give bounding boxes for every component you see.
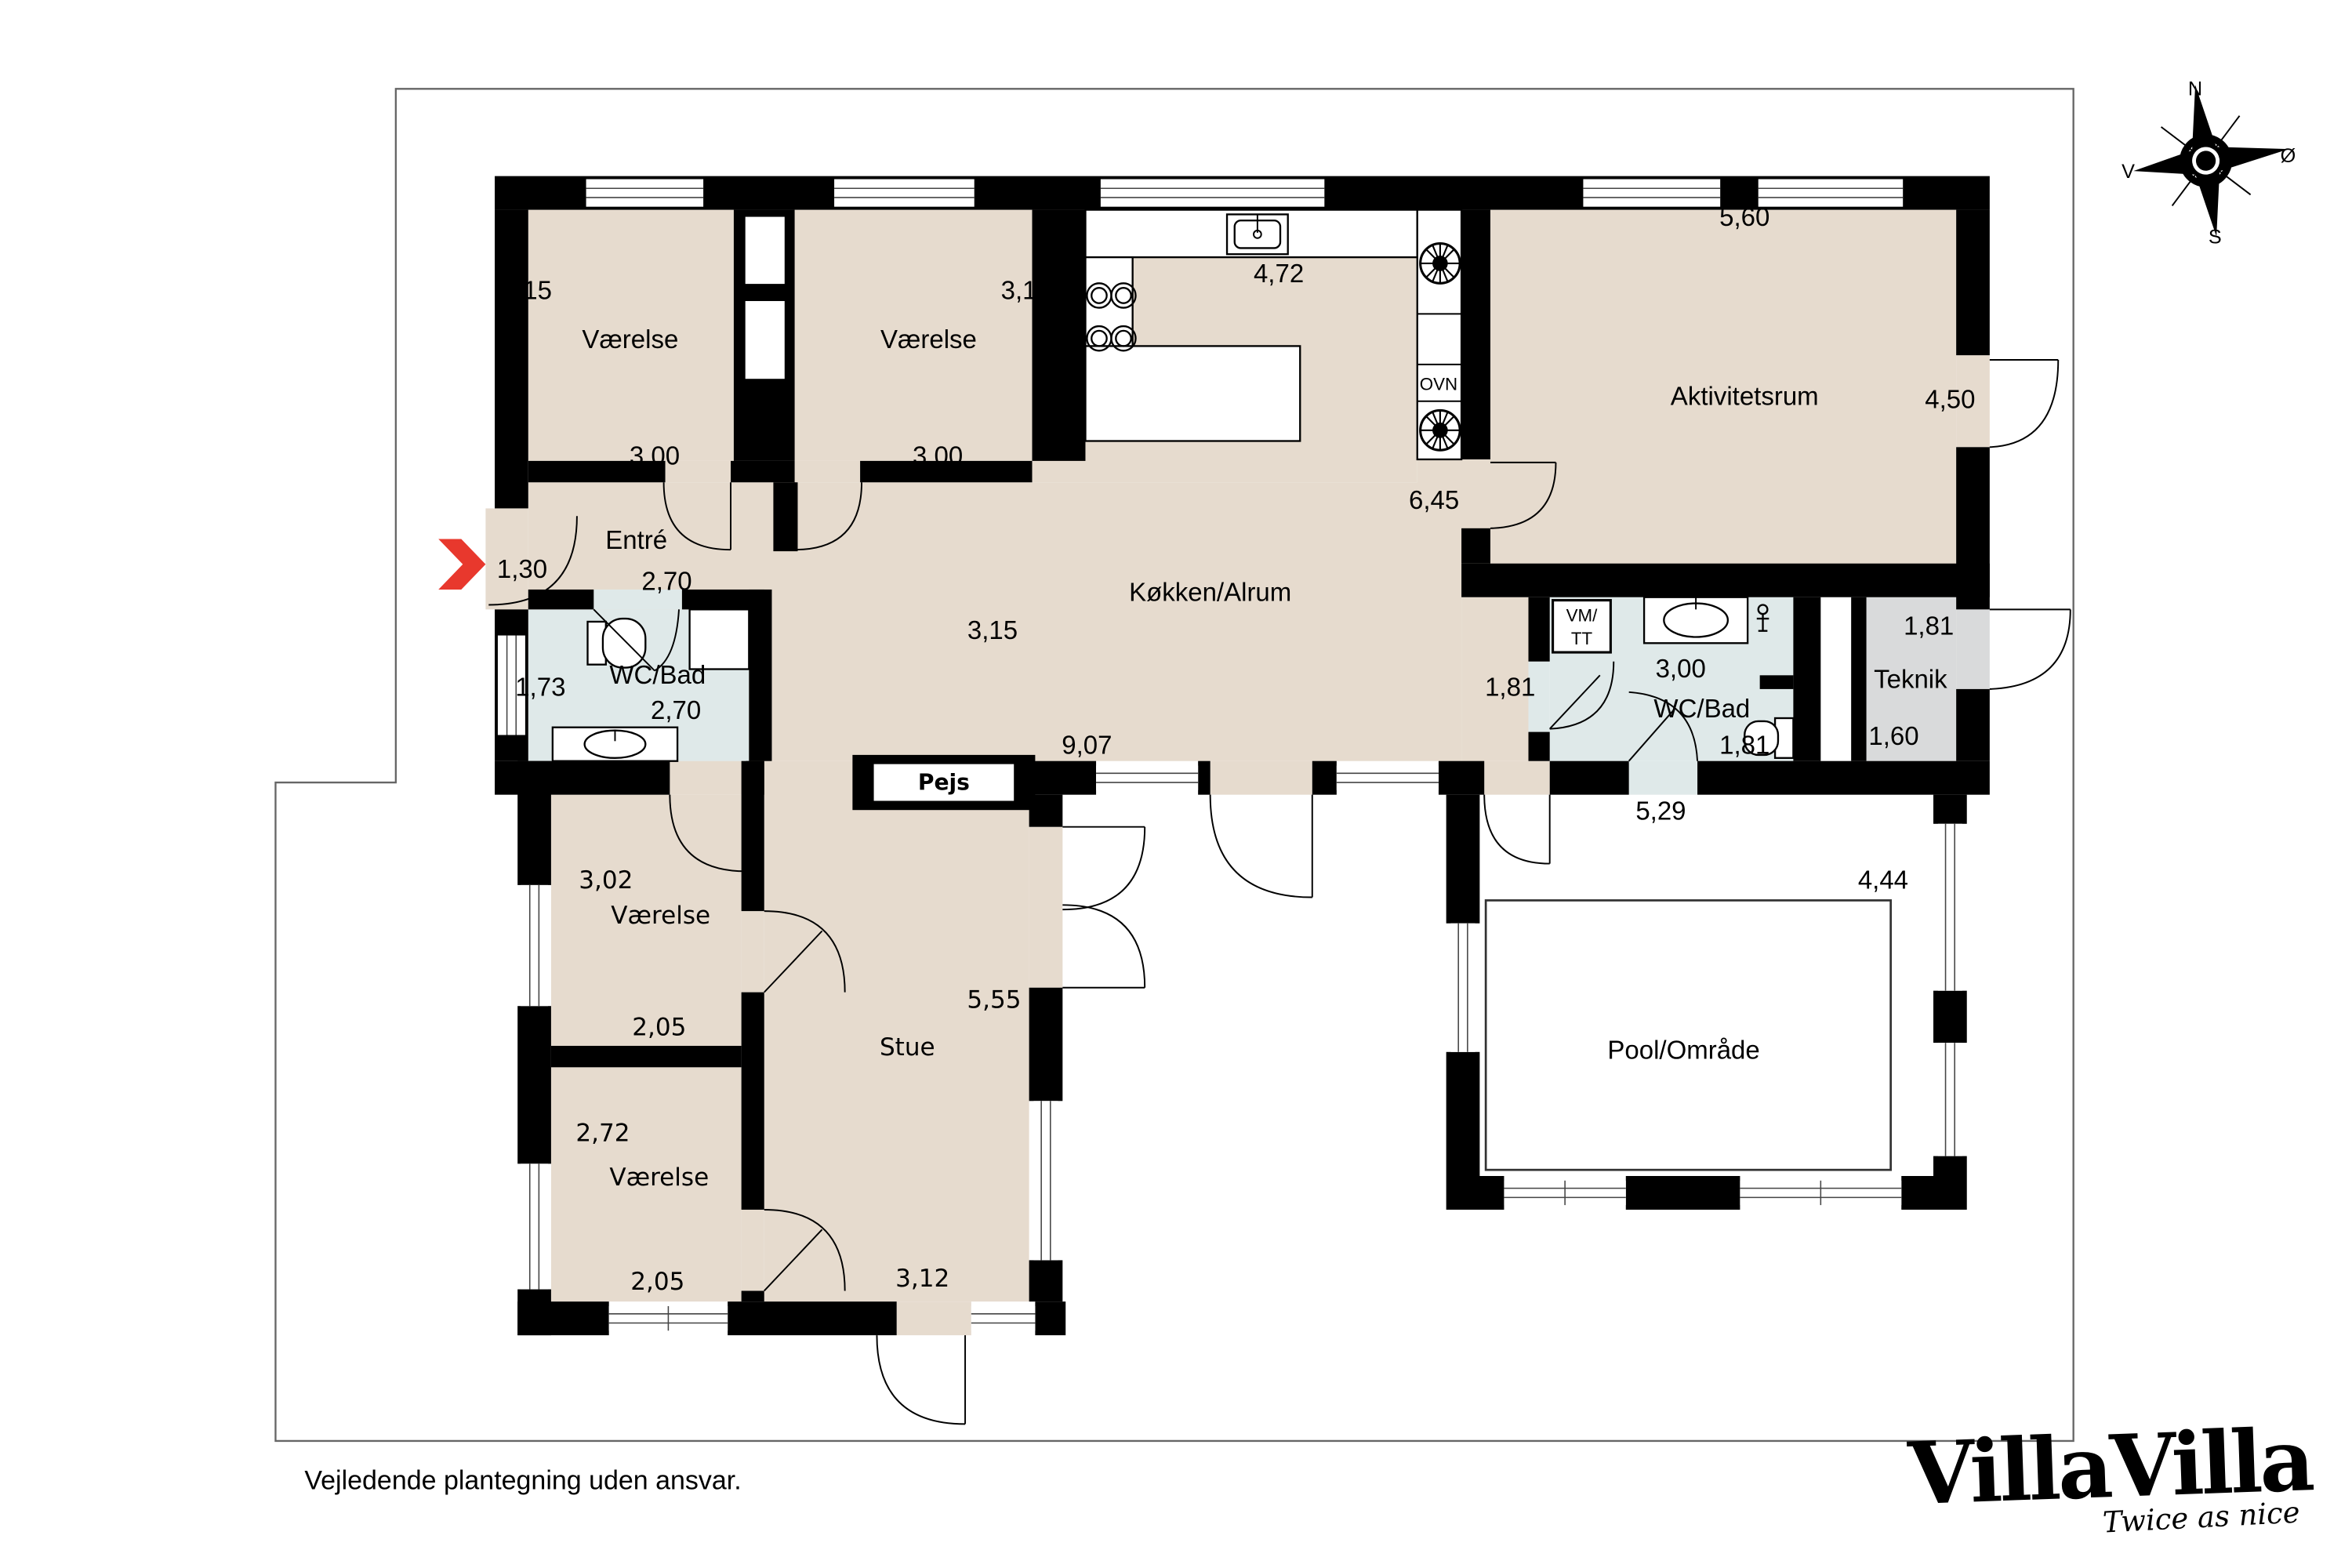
compass-south-label: S (2209, 227, 2222, 249)
window (609, 1306, 728, 1330)
window (971, 1306, 1036, 1330)
oven-label: OVN (1420, 375, 1457, 394)
wall-segment (1626, 1176, 1740, 1210)
measure-label: 1,81 (1904, 612, 1954, 641)
measure-label: 3,00 (913, 441, 963, 470)
measure-label: 2,72 (575, 1119, 630, 1147)
floor-living-room (764, 761, 1029, 1301)
wall-segment (1035, 1301, 1065, 1335)
room-label: Værelse (880, 325, 977, 354)
wall-segment (731, 461, 795, 482)
measure-label: 2,05 (632, 1013, 686, 1041)
kitchen-island (1085, 346, 1300, 441)
window (1759, 180, 1903, 207)
measure-label: 3,15 (967, 616, 1018, 645)
window (1583, 180, 1720, 207)
door (877, 1335, 965, 1424)
wall-segment (1029, 1260, 1063, 1301)
sink-icon (1644, 597, 1748, 644)
wall-segment (1029, 761, 1096, 795)
washer-label: VM/ (1566, 606, 1598, 626)
room-label: Værelse (609, 1163, 709, 1192)
wall-segment (1956, 689, 1990, 761)
measure-label: 3,15 (502, 277, 552, 306)
wall-segment (1446, 795, 1480, 924)
measure-label: 1,81 (1485, 673, 1535, 702)
wall-segment (528, 590, 593, 609)
wall-segment (1439, 761, 1484, 795)
wall-segment (1550, 761, 1629, 795)
entrance-arrow-icon (438, 539, 485, 590)
room-label: Teknik (1874, 666, 1947, 695)
closet-niche (745, 216, 786, 285)
oven-column (1417, 210, 1461, 459)
room-label: Værelse (611, 902, 710, 930)
wall-segment (1956, 210, 1990, 356)
wall-segment (517, 1006, 551, 1163)
window (1096, 766, 1198, 790)
floor-plan-drawing: 3,15 Værelse 3,00 3,15 Værelse 3,00 4,72… (0, 0, 2352, 1568)
measure-label: 9,07 (1062, 731, 1112, 760)
wall-segment (1033, 210, 1086, 461)
wall-segment (1529, 732, 1550, 761)
window (521, 1163, 548, 1289)
door-gap (897, 1301, 971, 1335)
compass-rose: N S Ø V (2122, 73, 2299, 248)
window (1101, 180, 1324, 207)
door-gap (742, 1210, 764, 1291)
wall-segment (749, 590, 771, 761)
room-label: WC/Bad (609, 661, 706, 690)
wall-segment (1029, 988, 1063, 1102)
measure-label: 2,70 (641, 568, 691, 597)
measure-label: 1,73 (515, 673, 565, 702)
window (834, 180, 975, 207)
brand-logo: VillaVilla Twice as nice (1906, 1410, 2315, 1540)
wall-segment (1760, 675, 1794, 689)
door (1062, 905, 1145, 987)
door-gap (742, 911, 764, 993)
compass-north-label: N (2188, 78, 2202, 100)
sink-icon (553, 728, 677, 761)
measure-label: 5,60 (1719, 203, 1769, 232)
wall-segment (551, 1046, 742, 1067)
window (1504, 1181, 1625, 1205)
measure-label: 1,30 (497, 555, 547, 584)
wall-segment (1851, 597, 1866, 761)
window (521, 885, 548, 1006)
door-gap (1029, 827, 1063, 988)
measure-label: 1,81 (1719, 731, 1769, 760)
door-gap (1484, 761, 1549, 795)
compass-west-label: V (2122, 161, 2135, 183)
fan-icon (1421, 244, 1460, 284)
door (1210, 795, 1312, 898)
door-gap (795, 461, 860, 482)
door-gap (1956, 609, 1990, 689)
window (1938, 824, 1962, 991)
washer-label: TT (1571, 629, 1593, 648)
measure-label: 3,02 (579, 866, 633, 895)
window (1938, 1043, 1962, 1156)
wall-segment (1446, 1176, 1504, 1210)
wall-segment (1793, 597, 1820, 761)
door-gap (670, 761, 746, 795)
wall-segment (495, 210, 528, 509)
measure-label: 5,29 (1635, 797, 1686, 826)
wall-segment (1198, 761, 1210, 795)
door (1062, 827, 1145, 909)
wall-segment (1461, 528, 1490, 564)
wall-segment (728, 1301, 897, 1335)
compass-east-label: Ø (2281, 145, 2296, 167)
floor-plan-page: 3,15 Værelse 3,00 3,15 Værelse 3,00 4,72… (0, 0, 2352, 1568)
wall-segment (1529, 597, 1550, 662)
disclaimer-text: Vejledende plantegning uden ansvar. (304, 1466, 741, 1496)
measure-label: 3,00 (1656, 655, 1706, 684)
wall-segment (1461, 210, 1490, 459)
wall-segment (742, 1290, 764, 1301)
closet-niche (745, 300, 786, 380)
fireplace-label: Pejs (918, 769, 970, 795)
window (1740, 1181, 1901, 1205)
door (1990, 609, 2071, 689)
measure-label: 2,05 (630, 1268, 684, 1296)
room-label: WC/Bad (1653, 695, 1750, 724)
room-label: Værelse (582, 325, 678, 354)
wall-segment (742, 761, 764, 911)
wall-segment (1697, 761, 1990, 795)
window (1337, 766, 1439, 790)
wall-segment (742, 993, 764, 1210)
measure-label: 4,50 (1925, 385, 1975, 414)
measure-label: 6,45 (1409, 486, 1459, 515)
measure-label: 2,70 (651, 696, 701, 725)
window (1033, 1101, 1058, 1260)
wall-segment (1461, 564, 1990, 597)
measure-label: 5,55 (967, 985, 1021, 1014)
measure-label: 4,72 (1254, 260, 1304, 289)
measure-label: 3,00 (630, 441, 680, 470)
room-label: Stue (880, 1033, 935, 1062)
floor-passage (1820, 597, 1851, 761)
room-label: Entré (605, 526, 667, 555)
wall-segment (1933, 1156, 1967, 1176)
window (586, 180, 704, 207)
room-label: Køkken/Alrum (1129, 578, 1291, 607)
door-gap (1210, 761, 1312, 795)
measure-label: 3,15 (1001, 277, 1051, 306)
wall-segment (517, 761, 551, 885)
measure-label: 3,12 (895, 1265, 949, 1293)
measure-label: 1,60 (1868, 722, 1918, 751)
wall-segment (1901, 1176, 1966, 1210)
wall-segment (1933, 991, 1967, 1043)
fan-icon (1421, 410, 1460, 450)
room-label: Aktivitetsrum (1671, 382, 1819, 411)
measure-label: 4,44 (1858, 866, 1908, 895)
wall-segment (1933, 795, 1967, 824)
door-gap (1629, 761, 1697, 795)
window (1450, 924, 1475, 1052)
wall-segment (1446, 1052, 1480, 1176)
room-label: Pool/Område (1607, 1036, 1759, 1065)
door (1990, 360, 2058, 447)
door (1484, 795, 1549, 864)
wall-segment (517, 1301, 609, 1335)
wall-segment (1312, 761, 1337, 795)
kitchen-sink-icon (1227, 214, 1288, 254)
